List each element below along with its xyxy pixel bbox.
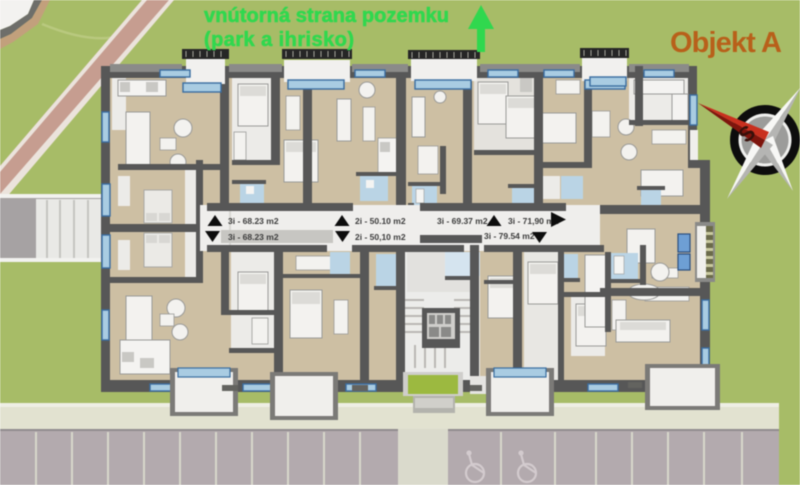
svg-text:3i - 69.37 m2: 3i - 69.37 m2 [437, 216, 488, 226]
svg-text:Objekt A: Objekt A [670, 27, 782, 59]
svg-text:vnútorná strana pozemku: vnútorná strana pozemku [204, 5, 449, 27]
svg-text:3i - 68.23 m2: 3i - 68.23 m2 [228, 232, 279, 242]
svg-text:3i - 79.54 m2: 3i - 79.54 m2 [484, 231, 535, 241]
svg-text:(park a ihrisko): (park a ihrisko) [204, 29, 354, 51]
svg-text:3i - 68.23 m2: 3i - 68.23 m2 [228, 216, 279, 226]
svg-text:2i - 50.10 m2: 2i - 50.10 m2 [355, 216, 406, 226]
svg-text:2i - 50,10 m2: 2i - 50,10 m2 [355, 232, 406, 242]
